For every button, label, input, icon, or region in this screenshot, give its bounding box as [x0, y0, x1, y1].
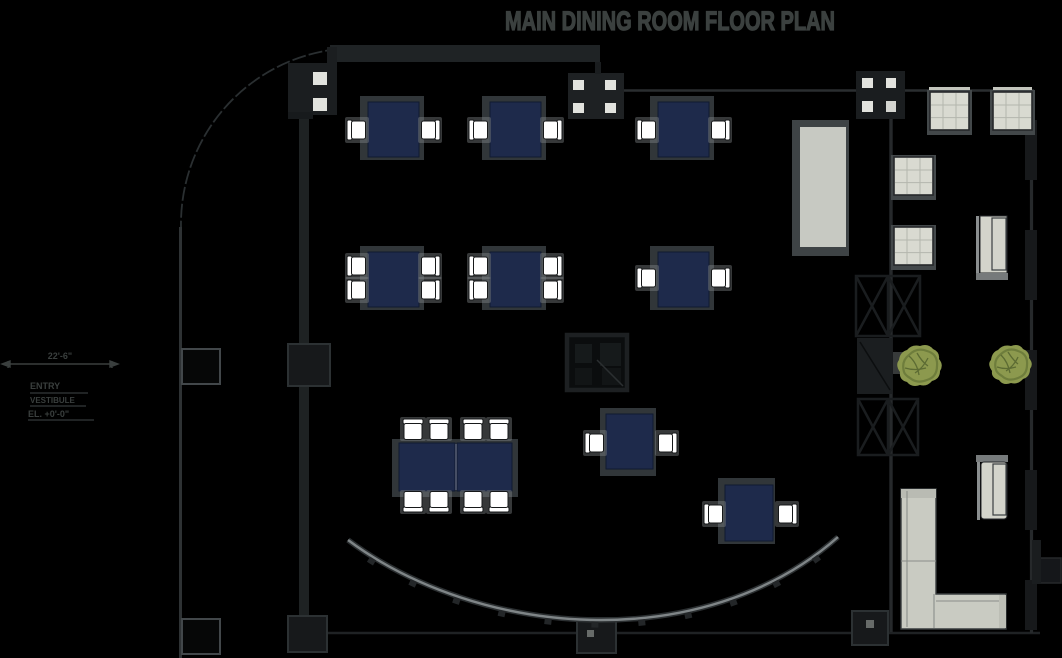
svg-text:MAIN DINING ROOM FLOOR PLAN: MAIN DINING ROOM FLOOR PLAN [505, 6, 835, 36]
svg-text:ENTRY: ENTRY [30, 381, 60, 391]
svg-text:VESTIBULE: VESTIBULE [30, 396, 76, 405]
svg-text:22'-6": 22'-6" [48, 351, 72, 361]
svg-text:EL. +0'-0": EL. +0'-0" [28, 409, 69, 419]
